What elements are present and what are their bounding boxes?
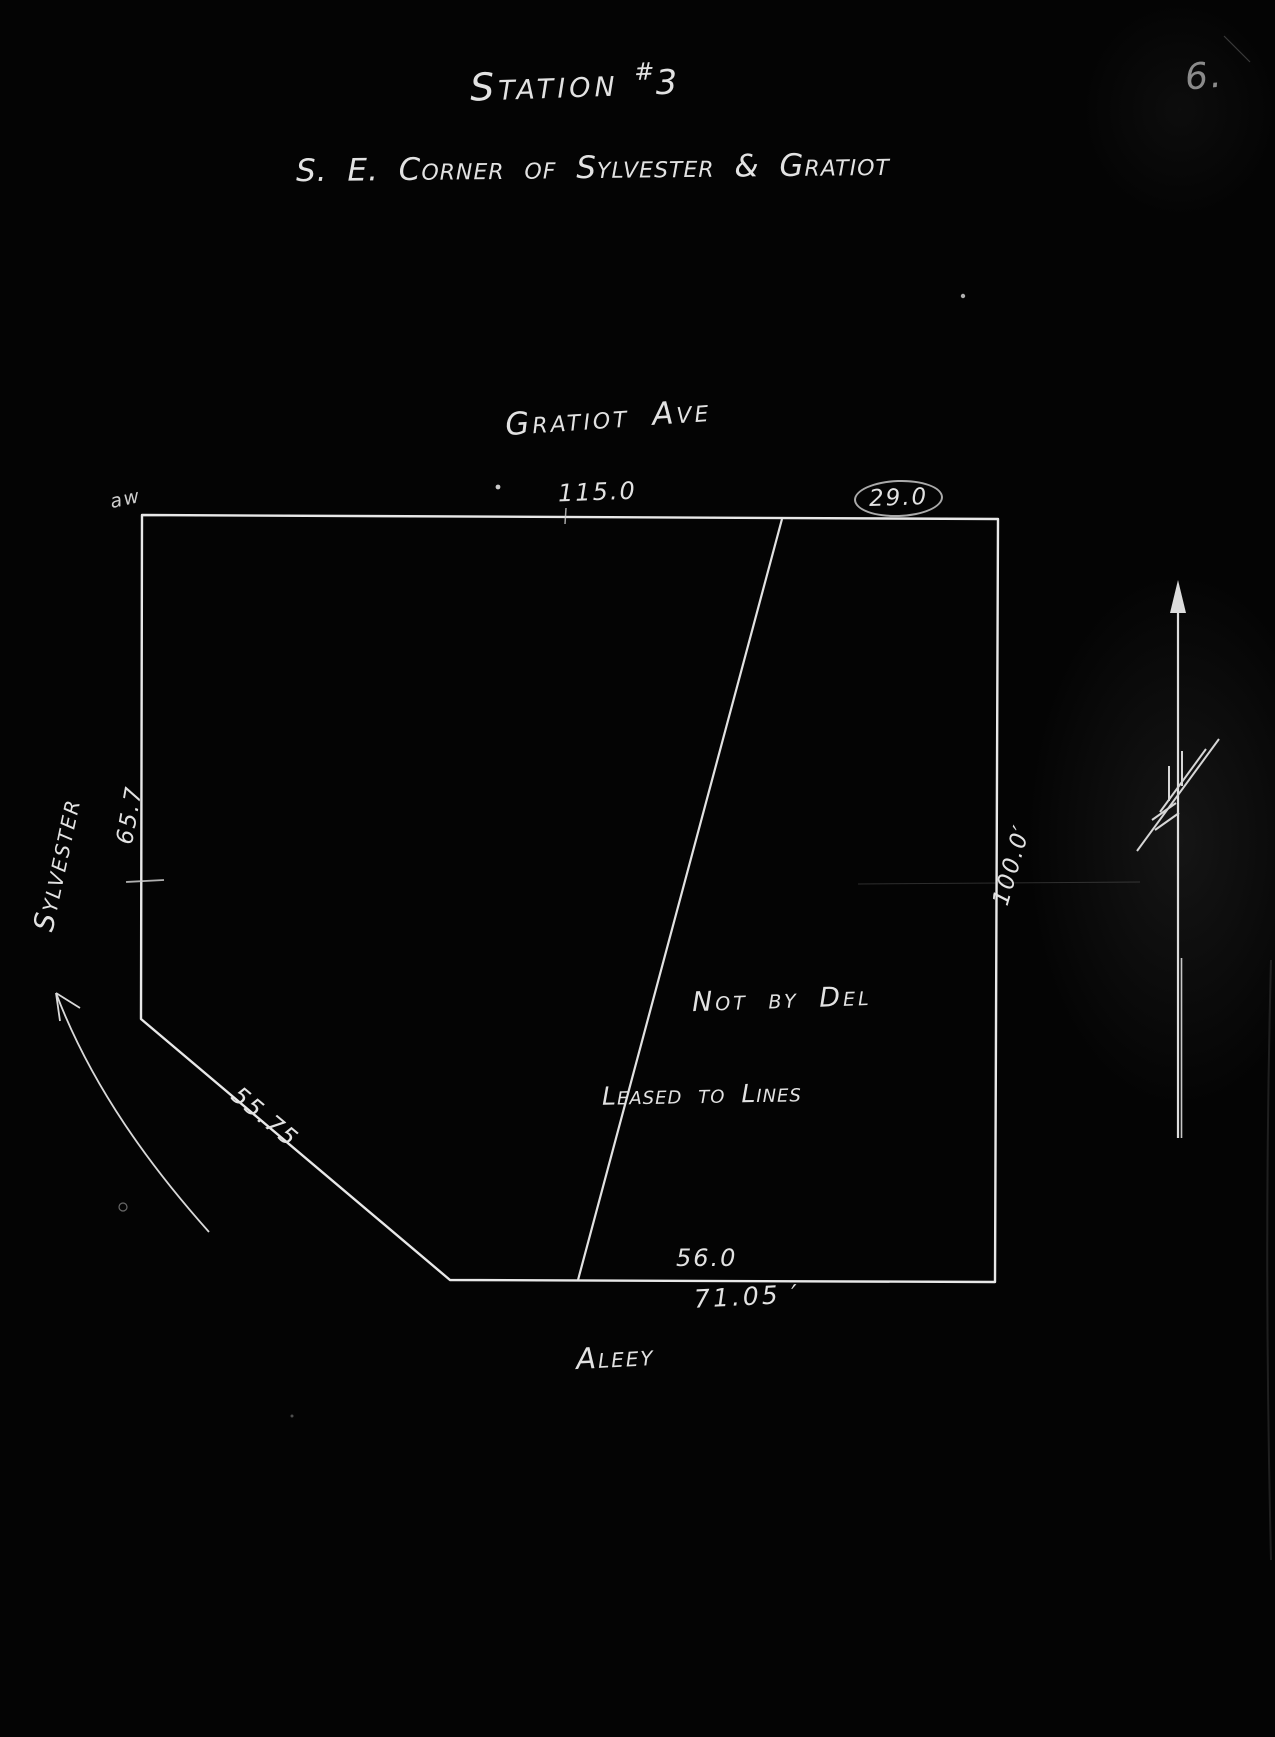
- dimension-gratiot-remainder: 29.0: [854, 480, 943, 517]
- north-arrowhead-icon: [1170, 580, 1186, 613]
- station-number: 3: [655, 62, 682, 103]
- street-label-alley: Aleey: [575, 1338, 655, 1376]
- speck-dot-3: [291, 1415, 294, 1418]
- number-sign-glyph: #: [634, 57, 655, 86]
- note-leased-to-lines: Leased to Lines: [602, 1078, 802, 1110]
- scan-scratch: [1224, 36, 1250, 62]
- north-arrow: [1137, 580, 1219, 1138]
- circled-dimension: 29.0: [853, 478, 943, 518]
- sylvester-arrowhead: [56, 993, 80, 1021]
- lease-division-line: [578, 519, 782, 1280]
- page-number: 6.: [1183, 54, 1225, 98]
- speck-dot-1: [961, 294, 965, 298]
- dimension-gratiot-frontage: 115.0: [558, 477, 638, 508]
- survey-linework: [0, 0, 1275, 1737]
- sylvester-arrow-curve: [56, 993, 209, 1232]
- sylvester-arrow: [56, 993, 209, 1232]
- dimension-alley-total: 71.05 ′: [693, 1279, 801, 1314]
- parcel-outline: [141, 515, 998, 1282]
- title-station-text: Station: [469, 61, 619, 110]
- page-title: Station#3: [469, 58, 682, 109]
- speck-dot-2: [496, 485, 501, 490]
- note-not-by-del: Not by Del: [692, 981, 873, 1018]
- blueprint-page: 6. Station#3 S. E. Corner of Sylvester &…: [0, 0, 1275, 1737]
- left-edge-tick: [126, 880, 164, 882]
- top-edge-tick: [565, 508, 566, 524]
- dimension-alley-inner: 56.0: [676, 1244, 737, 1272]
- page-edge-streak: [1267, 960, 1271, 1560]
- speck-circle: [119, 1203, 127, 1211]
- page-subtitle: S. E. Corner of Sylvester & Gratiot: [296, 147, 890, 189]
